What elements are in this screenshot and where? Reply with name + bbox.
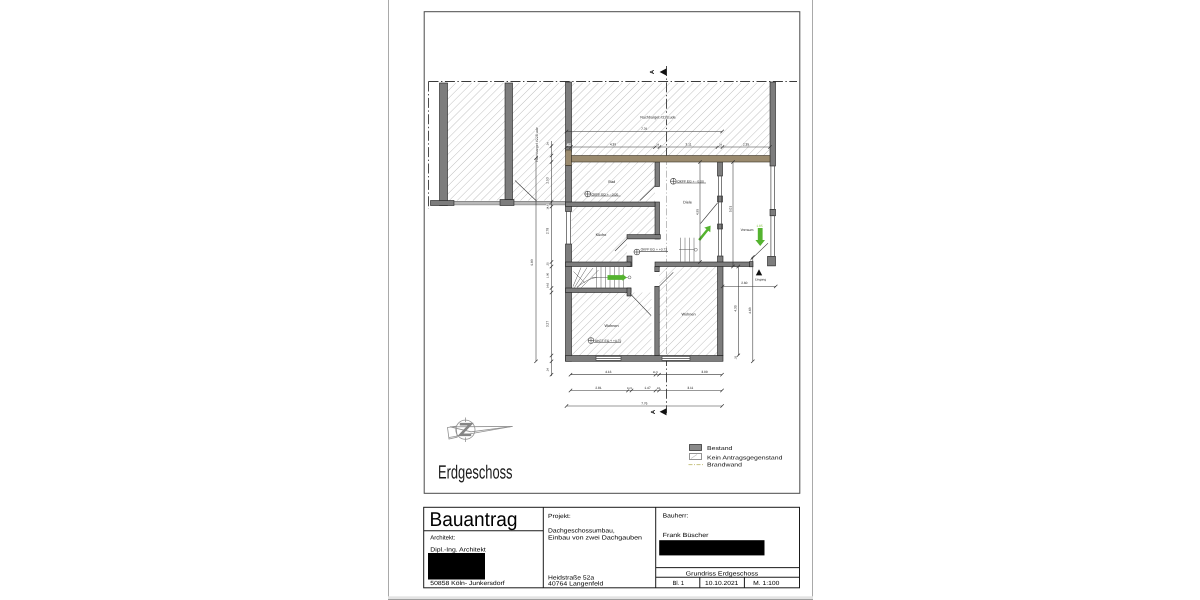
svg-text:.25: .25 [546,262,549,266]
svg-text:1.47: 1.47 [644,386,650,390]
svg-text:Bl. 1: Bl. 1 [673,580,685,587]
svg-text:2.35: 2.35 [743,143,749,147]
svg-text:.25: .25 [735,355,738,359]
svg-text:4.63: 4.63 [748,307,752,313]
svg-text:Frank Büscher: Frank Büscher [663,532,709,539]
svg-text:Küche: Küche [596,233,607,237]
svg-text:.24: .24 [546,142,549,146]
svg-text:Bauherr:: Bauherr: [663,512,689,519]
svg-text:2.78: 2.78 [545,228,549,234]
svg-text:1.00: 1.00 [546,272,549,278]
svg-text:Bad: Bad [608,180,615,184]
svg-text:A: A [650,409,657,414]
svg-text:50858 Köln- Junkersdorf: 50858 Köln- Junkersdorf [430,580,505,587]
svg-text:9.83: 9.83 [530,259,534,265]
svg-text:Bestand: Bestand [707,445,732,452]
svg-text:11.5: 11.5 [627,387,633,390]
svg-text:5.01: 5.01 [729,206,733,212]
svg-text:11.5: 11.5 [653,371,659,374]
svg-text:4.39: 4.39 [610,143,616,147]
svg-text:M. 1:100: M. 1:100 [753,580,780,587]
svg-text:7.76: 7.76 [641,127,647,131]
svg-text:4.95: 4.95 [696,209,700,215]
svg-text:7.76: 7.76 [641,402,647,406]
svg-text:40764 Langenfeld: 40764 Langenfeld [548,580,603,587]
svg-text:NachbargebNachbargebäude#228;u: NachbargebNachbargebäude#228;ude [640,116,675,120]
svg-text:Wohnen: Wohnen [682,312,696,316]
svg-text:.24: .24 [655,144,659,147]
svg-text:OKFF EG + +0.72: OKFF EG + +0.72 [595,339,622,343]
svg-text:14,6: 14,6 [546,282,549,288]
svg-text:2.81: 2.81 [595,386,601,390]
svg-text:14,6: 14,6 [546,204,549,210]
svg-text:OKFF EG + +0.72: OKFF EG + +0.72 [641,248,668,252]
svg-text:Dachgeschossumbau,: Dachgeschossumbau, [548,528,615,535]
svg-text:Projekt:: Projekt: [548,513,571,520]
svg-text:2.60: 2.60 [741,281,747,285]
svg-text:Grundriss Erdgeschoss: Grundriss Erdgeschoss [686,570,759,577]
svg-text:Vorraum: Vorraum [741,228,754,232]
svg-text:OKFF EG + - 0.00: OKFF EG + - 0.00 [592,192,619,196]
svg-text:Wohnen: Wohnen [605,324,619,328]
svg-text:3.11: 3.11 [687,386,693,390]
svg-text:.24: .24 [567,144,571,147]
svg-text:Einbau von zwei Dachgauben: Einbau von zwei Dachgauben [548,534,642,541]
svg-text:2.53: 2.53 [545,177,549,183]
svg-text:Eingang: Eingang [755,277,766,281]
svg-text:Kein Antragsgegenstand: Kein Antragsgegenstand [707,454,783,461]
svg-text:Diele: Diele [683,201,692,205]
svg-text:3.27: 3.27 [545,321,549,327]
svg-text:4.16: 4.16 [605,370,611,374]
svg-text:3.11: 3.11 [686,143,692,147]
svg-text:Dipl.-Ing. Architekt: Dipl.-Ing. Architekt [430,547,486,554]
svg-text:10.10.2021: 10.10.2021 [705,580,739,587]
svg-text:A: A [649,69,656,74]
svg-text:Brandwand: Brandwand [707,462,742,469]
svg-text:4.30: 4.30 [734,305,738,311]
svg-text:Bauantrag: Bauantrag [430,509,518,531]
svg-text:1.85: 1.85 [756,224,762,228]
svg-text:.24: .24 [546,368,549,372]
svg-text:.24: .24 [718,144,722,147]
svg-text:.24: .24 [656,387,660,390]
svg-text:Erdgeschoss: Erdgeschoss [438,463,513,484]
svg-text:Architekt:: Architekt: [430,534,455,541]
svg-text:3.00: 3.00 [701,370,707,374]
